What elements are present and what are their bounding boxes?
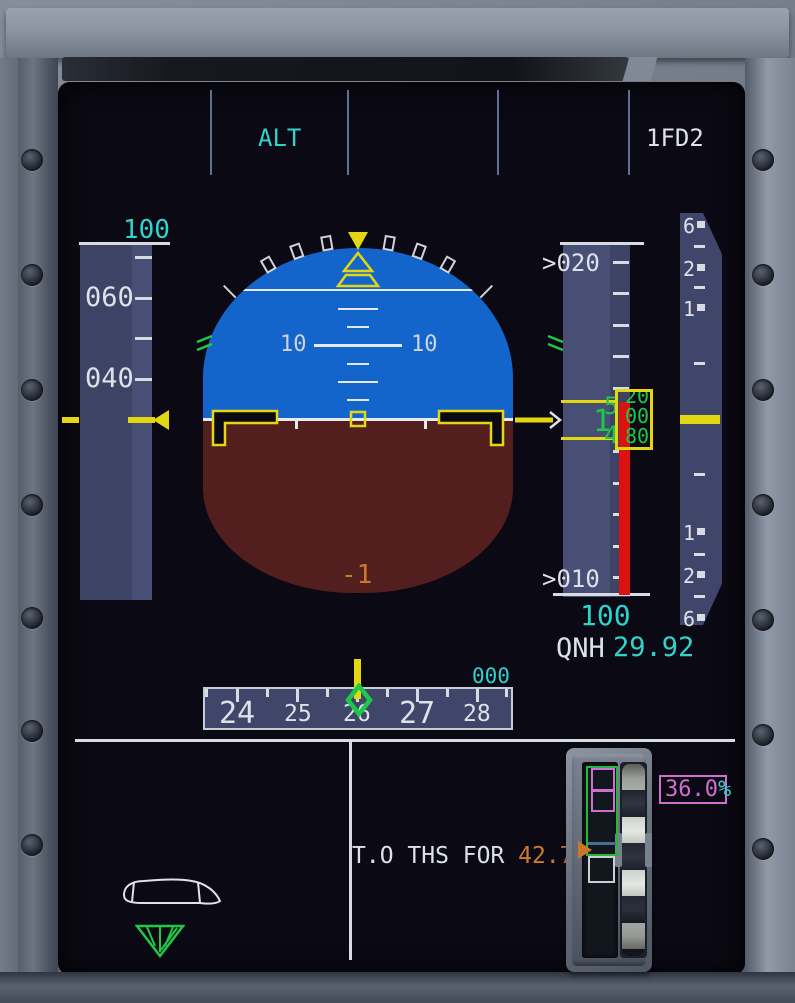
trim-readout-unit: % bbox=[718, 777, 731, 802]
alt-lower-label: >010 bbox=[542, 565, 600, 593]
ths-message: T.O THS FOR 42.7% bbox=[352, 843, 587, 869]
screw-icon bbox=[21, 264, 43, 286]
trim-target-box bbox=[591, 768, 615, 812]
alt-tick bbox=[613, 355, 629, 358]
fma-divider bbox=[347, 90, 349, 175]
vs-label: 1 bbox=[683, 297, 695, 321]
screw-icon bbox=[21, 494, 43, 516]
hdg-tick bbox=[505, 689, 508, 697]
qnh-value: 29.92 bbox=[613, 632, 694, 663]
screw-icon bbox=[21, 379, 43, 401]
screw-icon bbox=[752, 724, 774, 746]
vs-square bbox=[697, 571, 705, 578]
screw-icon bbox=[752, 838, 774, 860]
right-bezel bbox=[745, 58, 795, 975]
vs-dash bbox=[694, 362, 705, 365]
qnh-label: QNH bbox=[556, 633, 605, 664]
screw-icon bbox=[752, 609, 774, 631]
alt-upper-label: >020 bbox=[542, 249, 600, 277]
screw-icon bbox=[21, 720, 43, 742]
alt-tape-bottom-line bbox=[553, 593, 650, 596]
attitude-symbols bbox=[190, 225, 570, 465]
vs-square bbox=[697, 221, 705, 228]
hdg-label: 24 bbox=[219, 696, 255, 731]
fma-fd-id: 1FD2 bbox=[646, 124, 704, 152]
speed-tick bbox=[135, 378, 152, 381]
hdg-label: 28 bbox=[463, 701, 491, 727]
slat-position-icon bbox=[133, 922, 187, 960]
screw-icon bbox=[752, 264, 774, 286]
vs-square bbox=[697, 614, 705, 621]
hdg-tick bbox=[386, 689, 389, 697]
vs-label: 6 bbox=[683, 607, 695, 631]
trim-wheel-shading bbox=[622, 764, 645, 956]
fma-divider bbox=[210, 90, 212, 175]
trim-pointer-icon bbox=[578, 841, 592, 859]
vs-dash bbox=[694, 245, 705, 248]
vs-square bbox=[697, 304, 705, 311]
roll-index-triangle-icon bbox=[348, 232, 368, 250]
selected-heading: 000 bbox=[472, 664, 510, 688]
right-wing-symbol bbox=[439, 411, 503, 445]
alt-tick bbox=[613, 261, 629, 264]
speed-tick bbox=[135, 256, 152, 259]
bank-limit-marks bbox=[197, 336, 563, 350]
top-bezel bbox=[6, 8, 789, 58]
screw-icon bbox=[752, 379, 774, 401]
vs-dash bbox=[694, 473, 705, 476]
screw-icon bbox=[752, 149, 774, 171]
bezel-slot-cap bbox=[623, 57, 658, 81]
vs-square bbox=[697, 264, 705, 271]
vs-label: 2 bbox=[683, 564, 695, 588]
speed-pointer bbox=[128, 417, 155, 423]
trim-detent bbox=[645, 833, 652, 867]
vs-label: 1 bbox=[683, 521, 695, 545]
speed-label: 060 bbox=[85, 282, 134, 313]
vs-label: 2 bbox=[683, 257, 695, 281]
screw-icon bbox=[21, 607, 43, 629]
alt-tick bbox=[613, 292, 629, 295]
trim-readout-value: 36.0 bbox=[665, 777, 718, 802]
screw-icon bbox=[21, 834, 43, 856]
fma-divider bbox=[628, 90, 630, 175]
screw-icon bbox=[752, 494, 774, 516]
fma-divider bbox=[497, 90, 499, 175]
speed-ref-dash bbox=[62, 417, 79, 423]
trim-white-box bbox=[588, 856, 615, 883]
alt-drum-digit: 60 bbox=[625, 444, 649, 450]
fpa-value: -1 bbox=[341, 560, 372, 590]
track-diamond-icon bbox=[343, 683, 375, 717]
speed-pointer-arrow bbox=[152, 409, 170, 431]
bezel-vent-slot bbox=[62, 57, 628, 81]
vs-square bbox=[697, 528, 705, 535]
trim-neutral-line bbox=[588, 842, 616, 845]
lower-divider-h bbox=[75, 739, 735, 742]
hdg-label: 25 bbox=[284, 701, 312, 727]
speed-tick bbox=[135, 337, 152, 340]
fma-active-mode: ALT bbox=[258, 124, 301, 152]
speed-label: 040 bbox=[85, 363, 134, 394]
selected-speed: 100 bbox=[123, 215, 170, 245]
ths-label: T.O THS FOR bbox=[352, 843, 518, 869]
hdg-tick bbox=[205, 689, 208, 697]
hdg-tick bbox=[266, 689, 269, 697]
hdg-label: 27 bbox=[399, 696, 435, 731]
center-aim-box bbox=[351, 412, 365, 426]
sideslip-indicator-icon bbox=[338, 275, 378, 286]
roll-pointer-triangle-icon bbox=[344, 253, 372, 271]
speed-tick bbox=[135, 297, 152, 300]
vs-dash bbox=[694, 553, 705, 556]
alt-tick bbox=[613, 324, 629, 327]
alt-tape-top-line bbox=[560, 242, 644, 245]
vs-dash bbox=[694, 595, 705, 598]
alt-window: 20 00 80 60 bbox=[615, 389, 653, 450]
vs-label: 6 bbox=[683, 214, 695, 238]
vs-indicator bbox=[680, 415, 720, 424]
wing-airfoil-icon bbox=[120, 874, 225, 910]
hdg-tick bbox=[326, 689, 329, 697]
hdg-tick bbox=[446, 689, 449, 697]
screw-icon bbox=[21, 149, 43, 171]
vs-dash bbox=[694, 286, 705, 289]
left-wing-symbol bbox=[213, 411, 277, 445]
trim-readout-box: 36.0% bbox=[659, 775, 727, 804]
bottom-bezel bbox=[0, 972, 795, 1003]
selected-altitude: 100 bbox=[580, 599, 631, 632]
